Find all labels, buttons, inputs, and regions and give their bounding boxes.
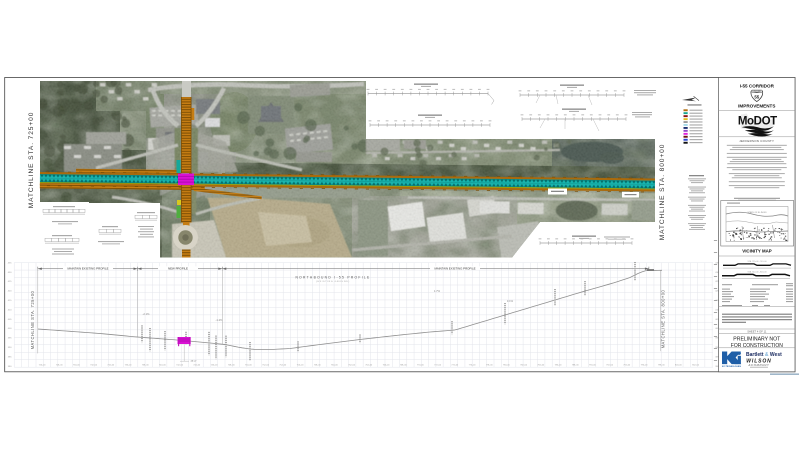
svg-text:752+00: 752+00 xyxy=(262,365,270,367)
svg-text:STA. 742+00 - 800+00: STA. 742+00 - 800+00 xyxy=(748,270,767,273)
svg-text:SHEET 4 OF 11: SHEET 4 OF 11 xyxy=(747,330,767,334)
svg-text:778+00: 778+00 xyxy=(486,365,494,367)
svg-text:794+00: 794+00 xyxy=(623,365,631,367)
svg-text:MAINTAIN EXISTING PROFILE: MAINTAIN EXISTING PROFILE xyxy=(67,267,108,271)
svg-text:782+00: 782+00 xyxy=(520,365,528,367)
svg-text:1.7%: 1.7% xyxy=(434,289,441,293)
svg-text:NEW PROFILE: NEW PROFILE xyxy=(168,267,188,271)
svg-text:STA. 725+00 - 742+00: STA. 725+00 - 742+00 xyxy=(748,260,767,263)
svg-text:-1.2%: -1.2% xyxy=(215,318,223,322)
svg-text:792+00: 792+00 xyxy=(606,365,614,367)
svg-text:770+00: 770+00 xyxy=(417,365,425,367)
svg-text:746+00: 746+00 xyxy=(211,365,219,367)
svg-text:MATCHLINE STA. 800+00: MATCHLINE STA. 800+00 xyxy=(659,144,666,241)
svg-text:784+00: 784+00 xyxy=(537,365,545,367)
svg-text:760+00: 760+00 xyxy=(331,365,339,367)
svg-text:764+00: 764+00 xyxy=(365,365,373,367)
svg-text:MATCHLINE STA. 800+00: MATCHLINE STA. 800+00 xyxy=(661,289,666,348)
svg-text:774+00: 774+00 xyxy=(451,365,459,367)
svg-text:MATCHLINE STA. 725+00: MATCHLINE STA. 725+00 xyxy=(30,290,35,349)
svg-text:788+00: 788+00 xyxy=(572,365,580,367)
svg-text:736+00: 736+00 xyxy=(125,365,133,367)
svg-text:IMPROVEMENTS: IMPROVEMENTS xyxy=(738,103,775,108)
svg-text:738+00: 738+00 xyxy=(142,365,150,367)
svg-text:802+00: 802+00 xyxy=(692,365,700,367)
svg-text:780+00: 780+00 xyxy=(503,365,511,367)
svg-text:Bartlett & West: Bartlett & West xyxy=(746,352,782,358)
svg-text:742+00: 742+00 xyxy=(176,365,184,367)
svg-text:776+00: 776+00 xyxy=(469,365,477,367)
svg-text:-2.1%: -2.1% xyxy=(142,312,150,316)
svg-text:758+00: 758+00 xyxy=(314,365,322,367)
svg-text:NORTHBOUND I-55 PROFILE: NORTHBOUND I-55 PROFILE xyxy=(295,276,370,280)
svg-text:VICINITY MAP: VICINITY MAP xyxy=(742,249,772,254)
svg-text:772+00: 772+00 xyxy=(434,365,442,367)
svg-text:3.1%: 3.1% xyxy=(507,299,514,303)
svg-text:750+00: 750+00 xyxy=(245,365,253,367)
svg-text:MATCHLINE STA. 725+00: MATCHLINE STA. 725+00 xyxy=(28,112,35,209)
svg-text:796+00: 796+00 xyxy=(641,365,649,367)
svg-text:(EXISTING GROUND): (EXISTING GROUND) xyxy=(316,281,350,283)
svg-text:768+00: 768+00 xyxy=(400,365,408,367)
svg-text:744+00: 744+00 xyxy=(193,365,201,367)
svg-text:JEFFERSON COUNTY: JEFFERSON COUNTY xyxy=(739,139,774,143)
svg-text:STATE OF ILLINOIS: STATE OF ILLINOIS xyxy=(748,211,768,214)
svg-text:730+00: 730+00 xyxy=(73,365,81,367)
svg-text:754+00: 754+00 xyxy=(279,365,287,367)
svg-text:798+00: 798+00 xyxy=(658,365,666,367)
svg-text:35'-0": 35'-0" xyxy=(191,360,197,363)
svg-text:55: 55 xyxy=(754,95,759,100)
svg-text:FOR CONSTRUCTION: FOR CONSTRUCTION xyxy=(731,343,783,349)
svg-text:MoDOT: MoDOT xyxy=(738,116,777,128)
svg-text:728+00: 728+00 xyxy=(56,365,64,367)
svg-text:I-55 CORRIDOR: I-55 CORRIDOR xyxy=(740,84,775,89)
svg-text:748+00: 748+00 xyxy=(228,365,236,367)
svg-text:740+00: 740+00 xyxy=(159,365,167,367)
svg-text:MAINTAIN EXISTING PROFILE: MAINTAIN EXISTING PROFILE xyxy=(434,267,475,271)
svg-text:786+00: 786+00 xyxy=(555,365,563,367)
svg-text:732+00: 732+00 xyxy=(90,365,98,367)
svg-text:PRELIMINARY NOT: PRELIMINARY NOT xyxy=(733,337,780,343)
svg-text:800+00: 800+00 xyxy=(675,365,683,367)
svg-text:766+00: 766+00 xyxy=(383,365,391,367)
svg-text:790+00: 790+00 xyxy=(589,365,597,367)
svg-text:756+00: 756+00 xyxy=(297,365,305,367)
svg-text:762+00: 762+00 xyxy=(348,365,356,367)
svg-text:KCI TECHNOLOGIES: KCI TECHNOLOGIES xyxy=(722,366,742,368)
svg-text:734+00: 734+00 xyxy=(107,365,115,367)
svg-text:&COMPANY: &COMPANY xyxy=(749,363,770,367)
svg-text:726+00: 726+00 xyxy=(39,365,47,367)
